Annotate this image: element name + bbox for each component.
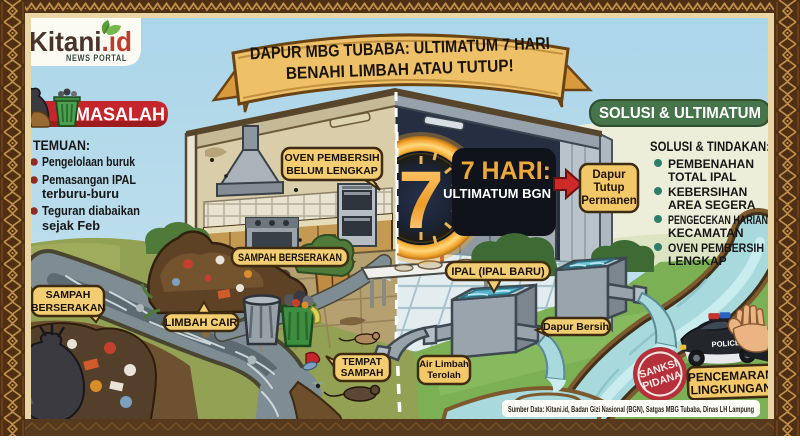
svg-text:Pengelolaan buruk: Pengelolaan buruk — [42, 155, 135, 169]
svg-text:Permanen: Permanen — [581, 195, 637, 207]
svg-text:Tutup: Tutup — [593, 182, 624, 194]
svg-text:BERSERAKAN: BERSERAKAN — [31, 302, 105, 314]
svg-text:Dapur: Dapur — [592, 169, 626, 181]
svg-text:PEMBENAHAN: PEMBENAHAN — [668, 157, 754, 171]
svg-text:KECAMATAN: KECAMATAN — [668, 226, 744, 240]
svg-text:LINGKUNGAN: LINGKUNGAN — [690, 381, 772, 398]
svg-text:7 HARI:: 7 HARI: — [461, 157, 551, 185]
svg-text:7: 7 — [398, 155, 444, 246]
svg-text:SOLUSI & ULTIMATUM: SOLUSI & ULTIMATUM — [599, 105, 761, 122]
svg-text:NEWS PORTAL: NEWS PORTAL — [66, 53, 127, 63]
svg-text:KEBERSIHAN: KEBERSIHAN — [668, 185, 747, 199]
svg-text:OVEN PEMBERSIH: OVEN PEMBERSIH — [668, 241, 764, 255]
svg-text:LENGKAP: LENGKAP — [668, 254, 727, 268]
svg-text:SAMPAH: SAMPAH — [46, 289, 91, 301]
svg-text:sejak Feb: sejak Feb — [42, 219, 100, 233]
svg-text:Pemasangan IPAL: Pemasangan IPAL — [42, 173, 136, 187]
svg-text:Terolah: Terolah — [427, 370, 461, 381]
svg-text:Air Limbah: Air Limbah — [419, 359, 469, 370]
svg-text:TOTAL IPAL: TOTAL IPAL — [668, 170, 736, 184]
svg-text:AREA SEGERA: AREA SEGERA — [668, 198, 756, 212]
svg-text:SOLUSI & TINDAKAN:: SOLUSI & TINDAKAN: — [650, 139, 770, 154]
svg-text:Dapur Bersih: Dapur Bersih — [543, 321, 609, 333]
svg-text:TEMUAN:: TEMUAN: — [33, 138, 90, 153]
svg-text:SAMPAH BERSERAKAN: SAMPAH BERSERAKAN — [238, 252, 342, 264]
svg-text:MASALAH: MASALAH — [75, 105, 165, 125]
svg-text:Teguran diabaikan: Teguran diabaikan — [42, 204, 140, 218]
svg-text:ULTIMATUM BGN: ULTIMATUM BGN — [443, 186, 551, 201]
svg-text:BELUM LENGKAP: BELUM LENGKAP — [286, 165, 378, 177]
svg-text:Sumber Data: Kitani.id, Badan: Sumber Data: Kitani.id, Badan Gizi Nasio… — [508, 404, 754, 414]
svg-text:OVEN PEMBERSIH: OVEN PEMBERSIH — [284, 152, 379, 164]
svg-text:SAMPAH: SAMPAH — [341, 368, 384, 379]
svg-text:LIMBAH CAIR: LIMBAH CAIR — [165, 317, 238, 329]
svg-text:IPAL (IPAL BARU): IPAL (IPAL BARU) — [451, 266, 545, 278]
svg-text:TEMPAT: TEMPAT — [342, 357, 382, 368]
svg-text:terburu-buru: terburu-buru — [42, 187, 119, 201]
svg-text:PENGECEKAN HARIAN: PENGECEKAN HARIAN — [668, 213, 768, 227]
